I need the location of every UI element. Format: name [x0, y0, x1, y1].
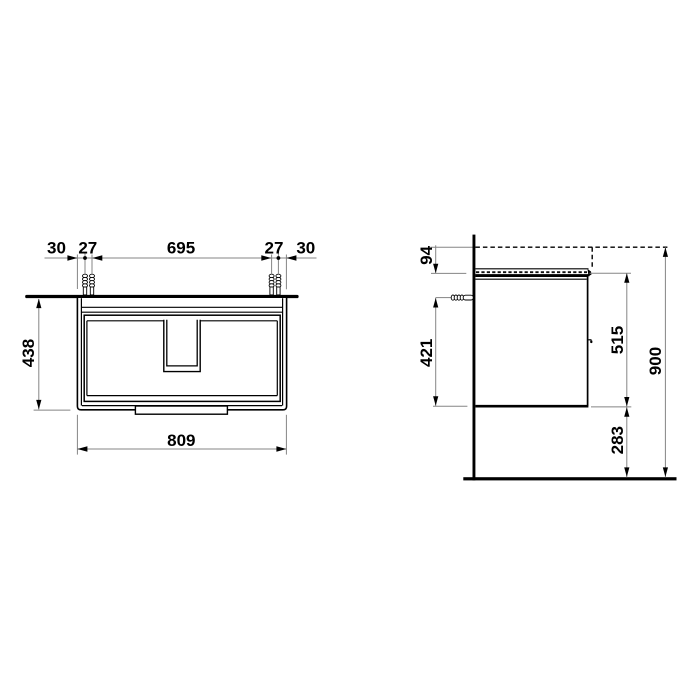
svg-text:438: 438 — [19, 339, 38, 367]
svg-text:94: 94 — [417, 245, 436, 264]
svg-text:900: 900 — [646, 347, 665, 375]
svg-text:283: 283 — [608, 426, 627, 454]
svg-text:27: 27 — [265, 238, 284, 257]
svg-text:30: 30 — [47, 238, 66, 257]
svg-text:421: 421 — [417, 339, 436, 367]
svg-text:515: 515 — [608, 326, 627, 354]
svg-text:27: 27 — [78, 238, 97, 257]
svg-text:695: 695 — [167, 238, 195, 257]
svg-text:809: 809 — [167, 431, 195, 450]
svg-text:30: 30 — [296, 238, 315, 257]
